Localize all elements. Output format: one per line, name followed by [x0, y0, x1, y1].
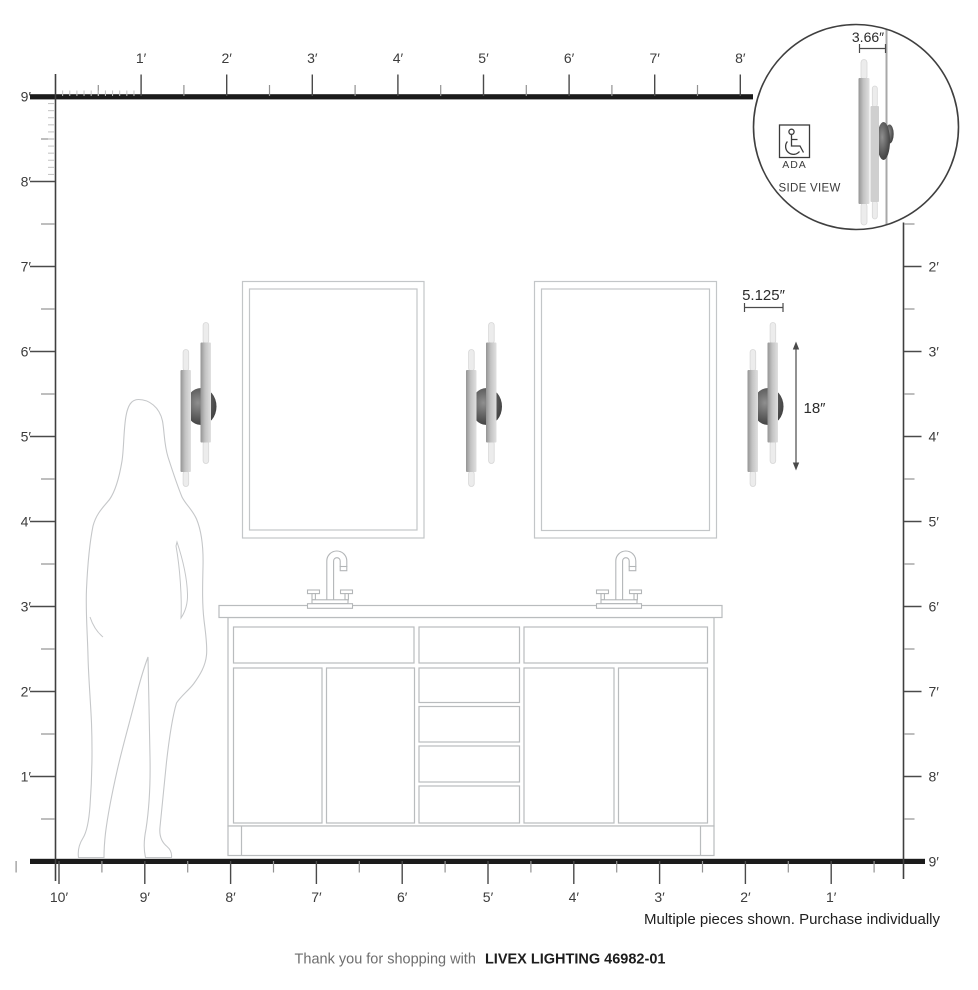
drawer-top: [419, 627, 520, 663]
ruler-label: 3′: [307, 50, 318, 66]
ruler-label: 3′: [21, 598, 32, 614]
ruler-label: 6′: [21, 343, 32, 359]
width-dimension-label: 5.125″: [742, 287, 786, 304]
ruler-label: 5′: [483, 889, 494, 905]
ruler-label: 8′: [735, 50, 746, 66]
purchase-note: Multiple pieces shown. Purchase individu…: [644, 911, 940, 928]
faucet-right: [597, 551, 642, 608]
cabinet-door: [619, 668, 708, 823]
depth-dimension-label: 3.66″: [852, 29, 884, 45]
wall-sconce-right: [748, 323, 784, 487]
ada-label: ADA: [782, 159, 807, 171]
ruler-label: 3′: [929, 344, 940, 360]
ruler-label: 8′: [225, 889, 236, 905]
ruler-label: 4′: [929, 429, 940, 445]
cabinet-door: [234, 668, 323, 823]
ruler-label: 8′: [929, 769, 940, 785]
vanity-cabinet: [219, 551, 722, 856]
side-view-label: SIDE VIEW: [779, 183, 841, 195]
false-drawer-right: [524, 627, 708, 663]
ruler-label: 2′: [21, 683, 32, 699]
ruler-label: 4′: [393, 50, 404, 66]
product-dimension-diagram: 1′2′3′4′5′6′7′8′ 9′8′7′6′5′4′3′2′1′ 2′3′…: [0, 0, 978, 990]
ruler-label: 5′: [21, 428, 32, 444]
ceiling-line: [30, 94, 753, 99]
ruler-label: 1′: [136, 50, 147, 66]
mirror-left: [243, 282, 425, 539]
ruler-bottom: 10′9′8′7′6′5′4′3′2′1′: [16, 861, 874, 905]
ruler-label: 2′: [929, 259, 940, 275]
footer-brand-model: LIVEX LIGHTING 46982-01: [485, 952, 666, 968]
side-view-inset: 3.66″ ADA SIDE VIEW: [754, 20, 959, 234]
cabinet-door: [524, 668, 614, 823]
ruler-label: 6′: [564, 50, 575, 66]
wall-sconce-center: [466, 323, 502, 487]
ruler-label: 7′: [21, 258, 32, 274]
ruler-label: 2′: [221, 50, 232, 66]
ruler-label: 7′: [649, 50, 660, 66]
ruler-label: 5′: [478, 50, 489, 66]
ruler-label: 10′: [50, 889, 69, 905]
ruler-label: 6′: [929, 599, 940, 615]
ruler-label: 5′: [929, 514, 940, 530]
faucet-left: [308, 551, 353, 608]
ruler-top: 1′2′3′4′5′6′7′8′: [63, 50, 746, 96]
ruler-label: 1′: [21, 768, 32, 784]
ruler-label: 7′: [311, 889, 322, 905]
drawer: [419, 707, 520, 743]
ruler-label: 9′: [21, 88, 32, 104]
ruler-label: 4′: [569, 889, 580, 905]
wall-sconce-left: [181, 323, 217, 487]
ruler-label: 4′: [21, 513, 32, 529]
ruler-label: 8′: [21, 173, 32, 189]
drawer: [419, 668, 520, 703]
ruler-label: 9′: [140, 889, 151, 905]
width-dimension: 5.125″: [742, 287, 786, 312]
ruler-label: 1′: [826, 889, 837, 905]
ruler-label: 9′: [929, 854, 940, 870]
countertop: [219, 606, 722, 618]
cabinet-base: [228, 826, 714, 856]
ruler-left: 9′8′7′6′5′4′3′2′1′: [21, 88, 55, 819]
footer-caption: Thank you for shopping with LIVEX LIGHTI…: [295, 952, 666, 968]
ruler-right: 2′3′4′5′6′7′8′9′: [904, 224, 939, 870]
footer-prefix: Thank you for shopping with: [295, 952, 476, 968]
height-dimension-label: 18″: [804, 400, 827, 417]
mirror-right: [535, 282, 717, 539]
height-dimension: 18″: [793, 342, 826, 471]
ruler-label: 6′: [397, 889, 408, 905]
ada-compliance-icon: [780, 125, 810, 158]
ruler-label: 7′: [929, 684, 940, 700]
ruler-label: 2′: [740, 889, 751, 905]
cabinet-door: [327, 668, 415, 823]
drawer: [419, 746, 520, 782]
drawer: [419, 786, 520, 823]
ruler-label: 3′: [654, 889, 665, 905]
diagram-canvas: 1′2′3′4′5′6′7′8′ 9′8′7′6′5′4′3′2′1′ 2′3′…: [0, 0, 978, 990]
floor-line: [30, 859, 925, 864]
false-drawer-left: [234, 627, 415, 663]
